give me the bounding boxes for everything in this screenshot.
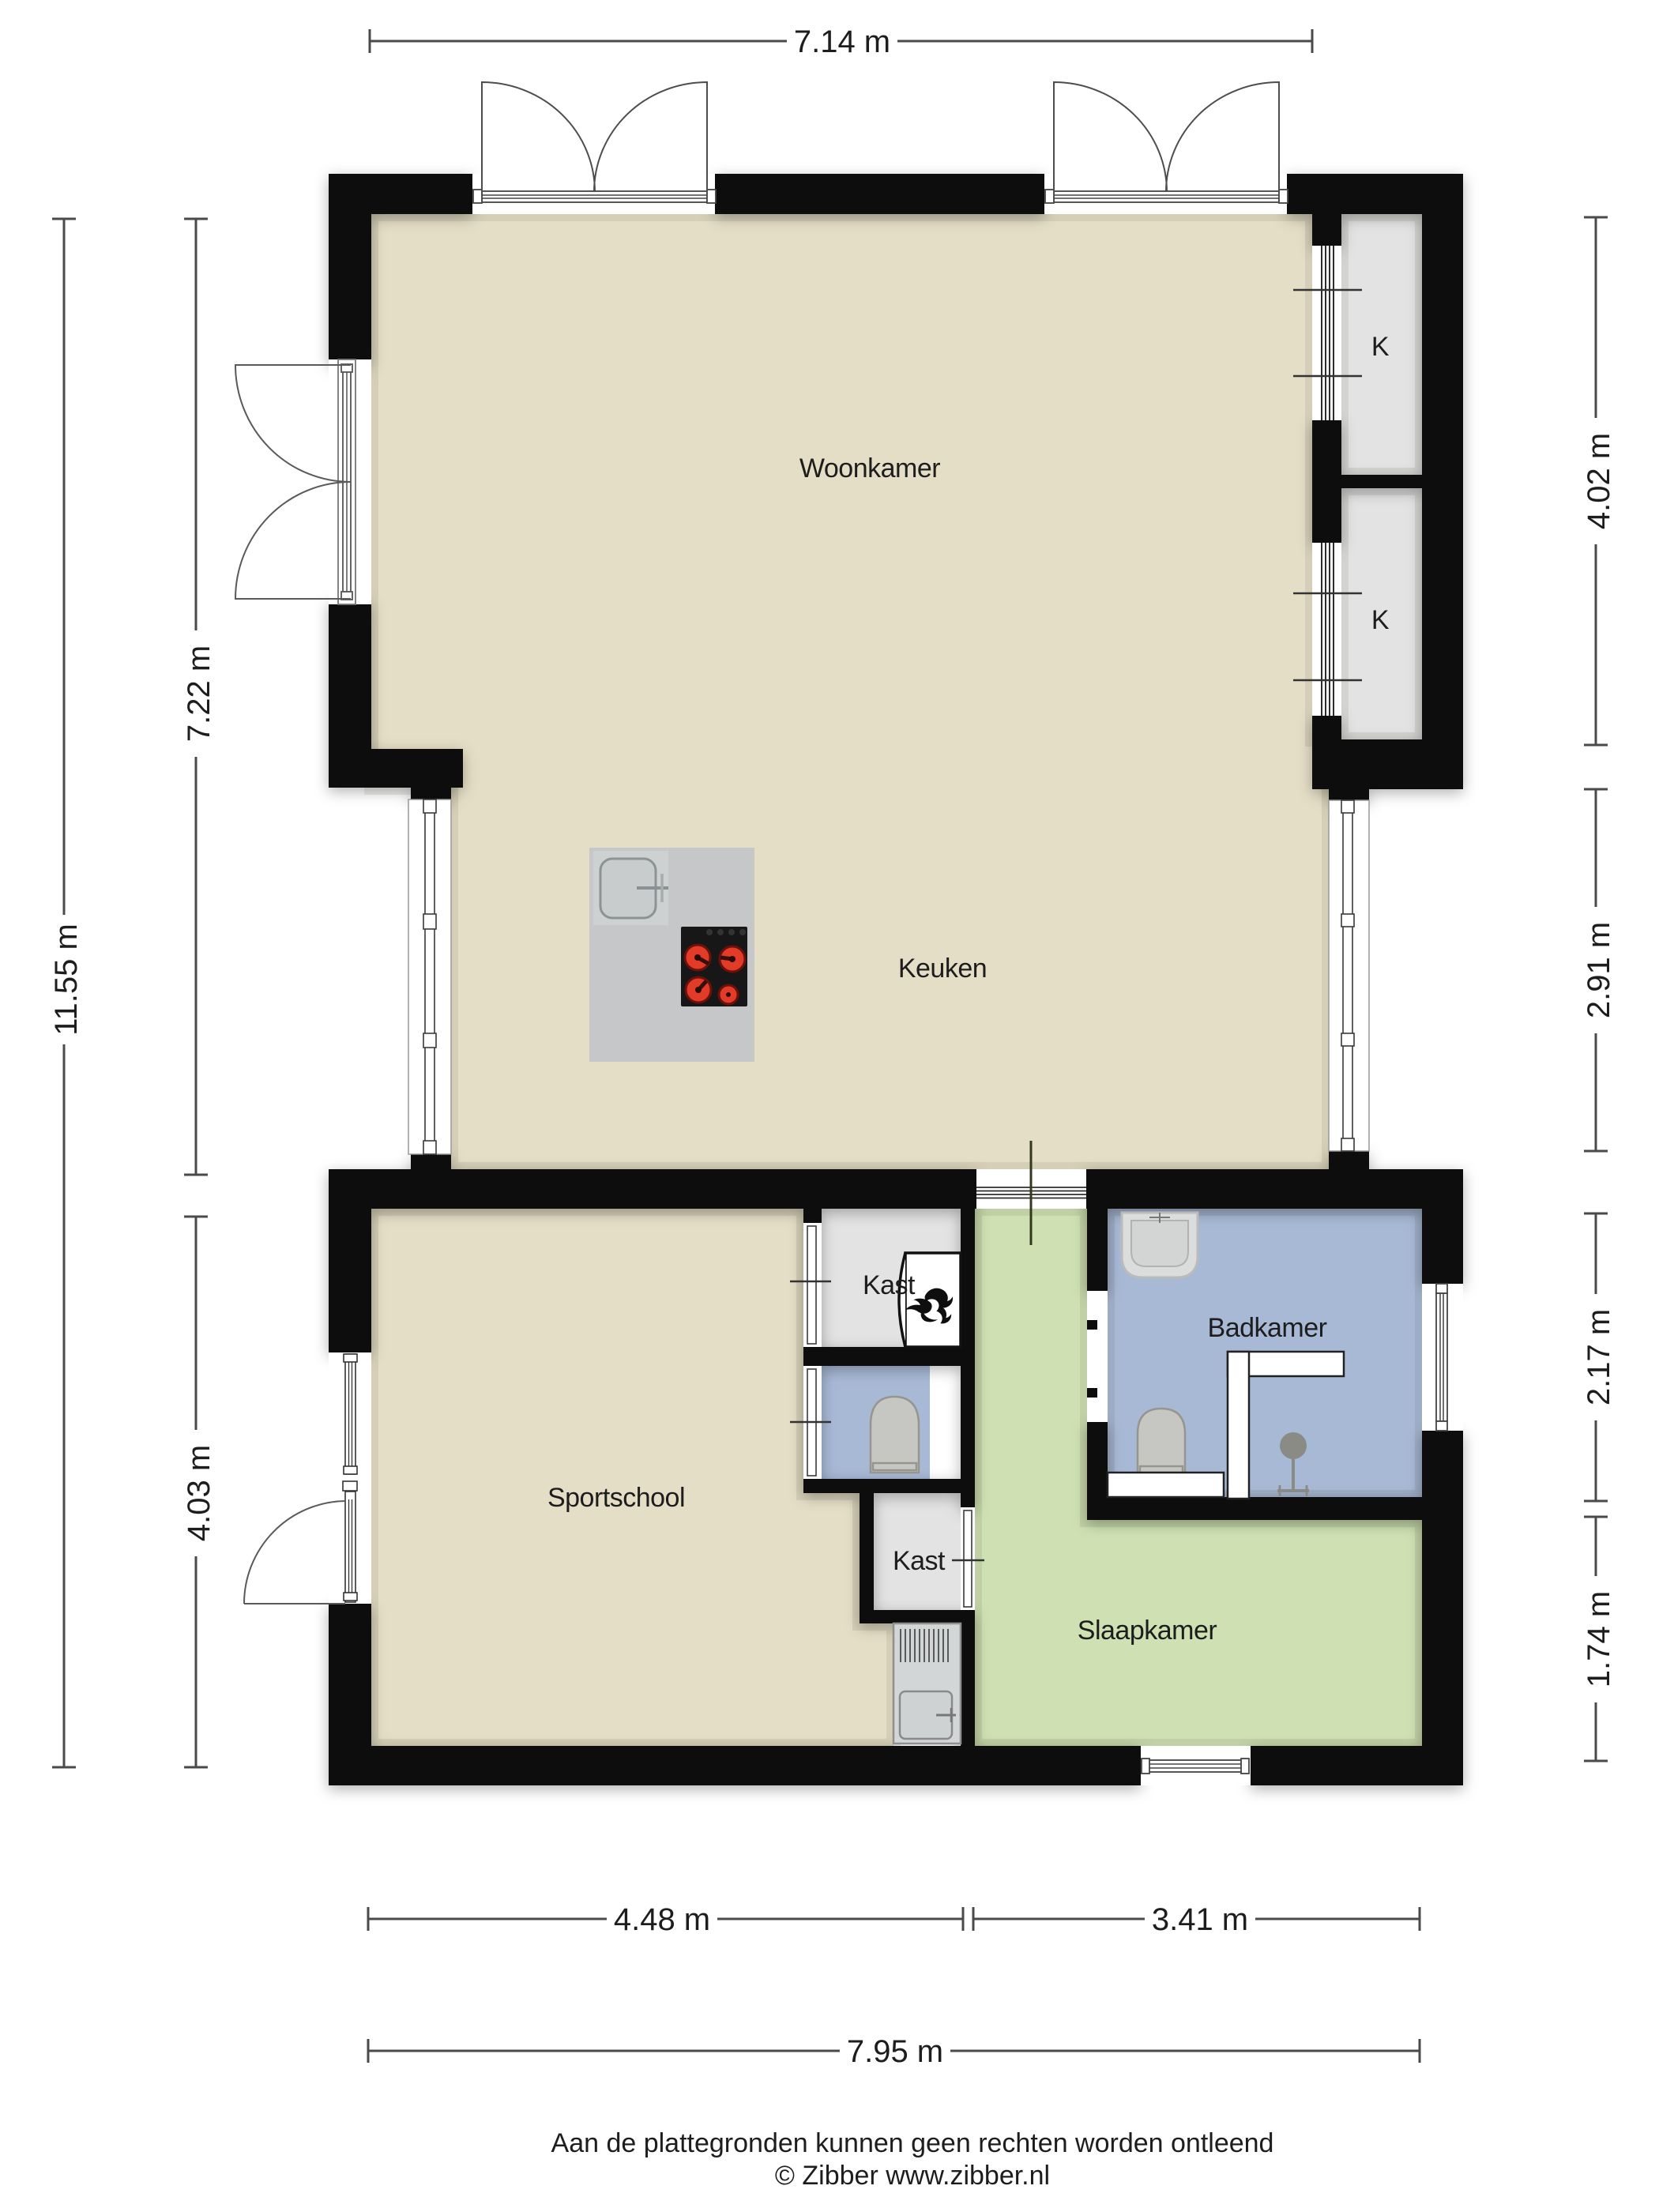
svg-text:2.17 m: 2.17 m — [1582, 1309, 1616, 1405]
svg-text:11.55 m: 11.55 m — [49, 924, 84, 1036]
svg-text:Sportschool: Sportschool — [547, 1483, 685, 1513]
svg-text:Slaapkamer: Slaapkamer — [1078, 1616, 1217, 1646]
svg-text:2.91 m: 2.91 m — [1582, 922, 1616, 1018]
svg-text:K: K — [1371, 605, 1390, 635]
svg-text:3.41 m: 3.41 m — [1152, 1902, 1248, 1937]
svg-text:4.03 m: 4.03 m — [182, 1445, 216, 1541]
svg-text:7.95 m: 7.95 m — [847, 2034, 943, 2069]
svg-text:7.22 m: 7.22 m — [182, 645, 216, 742]
svg-text:Aan de plattegronden kunnen ge: Aan de plattegronden kunnen geen rechten… — [551, 2128, 1274, 2158]
svg-text:Keuken: Keuken — [898, 954, 987, 984]
svg-text:Badkamer: Badkamer — [1208, 1313, 1327, 1343]
svg-text:4.02 m: 4.02 m — [1582, 433, 1616, 529]
svg-text:K: K — [1371, 332, 1390, 362]
svg-text:7.14 m: 7.14 m — [794, 24, 890, 59]
svg-text:Kast: Kast — [893, 1546, 946, 1576]
svg-text:4.48 m: 4.48 m — [614, 1902, 710, 1937]
svg-text:1.74 m: 1.74 m — [1582, 1591, 1616, 1687]
svg-text:© Zibber www.zibber.nl: © Zibber www.zibber.nl — [775, 2161, 1050, 2191]
svg-text:Kast: Kast — [863, 1270, 916, 1300]
svg-text:Woonkamer: Woonkamer — [799, 453, 940, 483]
